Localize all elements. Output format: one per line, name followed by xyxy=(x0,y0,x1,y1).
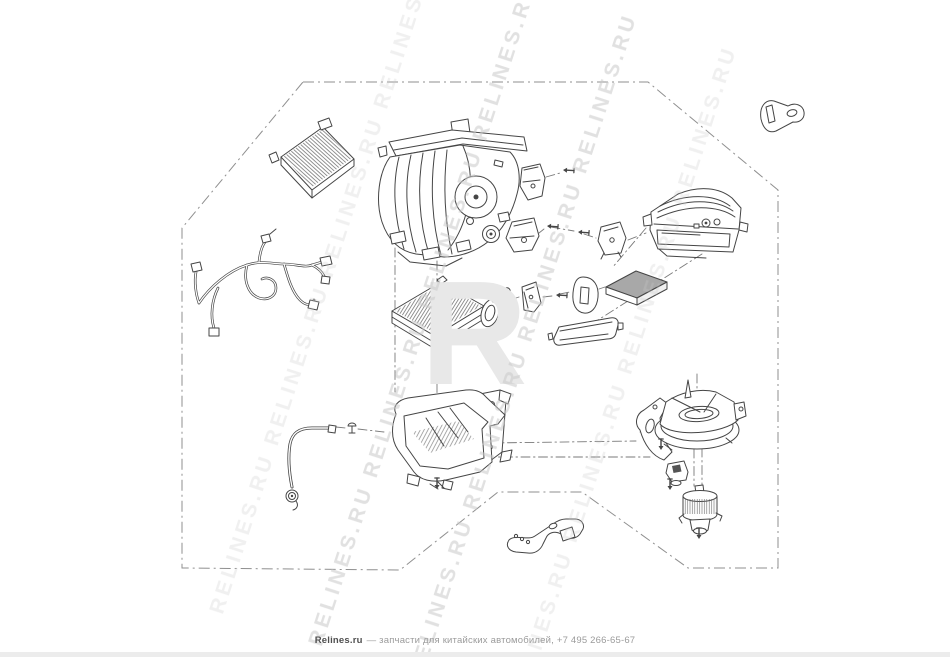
drain-tube xyxy=(286,425,336,510)
footer-caption: Relines.ru— запчасти для китайских автом… xyxy=(0,635,950,646)
screw-mode-2 xyxy=(578,230,589,236)
filter-cover-slat xyxy=(548,318,623,345)
footer-brand: Relines.ru xyxy=(315,635,363,646)
parts-diagram: R RELINES.RU RELINES.RU RELINES.RU RELIN… xyxy=(0,0,950,657)
heater-radiator-core xyxy=(269,118,354,198)
seal-grommet xyxy=(573,277,598,313)
damper-ring xyxy=(483,226,500,243)
bottom-edge-strip xyxy=(0,652,950,657)
blower-motor xyxy=(679,485,722,534)
retaining-clip xyxy=(348,423,356,433)
parts-diagram-canvas: R RELINES.RU RELINES.RU RELINES.RU RELIN… xyxy=(0,0,950,657)
blower-intake-cover xyxy=(655,380,746,450)
blower-resistor xyxy=(666,461,688,486)
watermark: R RELINES.RU RELINES.RU RELINES.RU RELIN… xyxy=(205,0,741,657)
air-mix-actuator xyxy=(520,164,545,200)
footer-info: — запчасти для китайских автомобилей, +7… xyxy=(367,635,636,646)
mode-actuator xyxy=(506,218,539,252)
mounting-bracket-top xyxy=(761,101,804,132)
watermark-text: RELINES.RU RELINES.RU RELINES.RU RELINES… xyxy=(504,42,742,657)
recirculation-servo xyxy=(598,222,626,259)
